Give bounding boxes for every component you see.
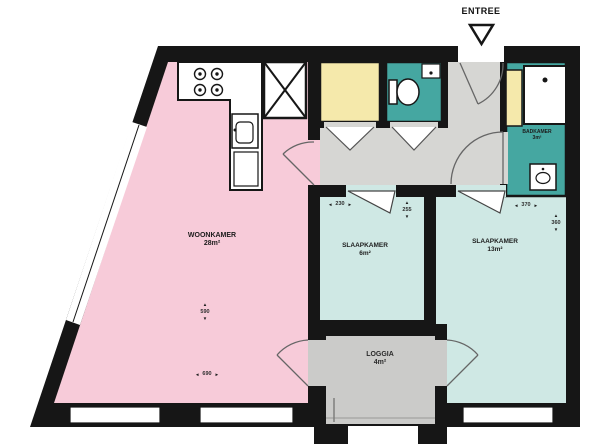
sink-icon <box>232 114 258 148</box>
arrow-up-icon: ▲ <box>405 201 409 206</box>
window-living-left <box>70 407 160 423</box>
room-name: SLAAPKAMER <box>342 242 388 250</box>
arrow-down-icon: ▼ <box>203 317 207 322</box>
toilet-basin-icon <box>422 64 440 78</box>
room-slaapkamer-large <box>436 197 566 403</box>
room-name: WOONKAMER <box>188 232 236 240</box>
washbasin-icon <box>530 164 556 190</box>
room-area: 13m² <box>472 246 518 254</box>
window-living-right <box>200 407 293 423</box>
window-bedroom-large <box>463 407 553 423</box>
room-area: 28m² <box>188 240 236 248</box>
loggia-opening <box>348 426 418 444</box>
badkamer-label: BADKAMER 3m² <box>522 129 551 141</box>
dim-value: 590 <box>200 310 209 316</box>
entrance-opening <box>458 46 504 62</box>
kitchen-appliance <box>234 152 258 186</box>
arrow-right-icon: ► <box>348 202 352 207</box>
entrance-arrow-icon <box>470 25 493 44</box>
room-area: 6m² <box>342 250 388 258</box>
arrow-left-icon: ◄ <box>195 372 199 377</box>
arrow-down-icon: ▼ <box>405 215 409 220</box>
dim-woonkamer-width: ◄ 690 ► <box>195 371 219 377</box>
bathroom-cupboard <box>506 70 522 126</box>
closet-room <box>320 62 380 122</box>
entree-label: ENTREE <box>462 6 501 16</box>
room-area: 4m² <box>366 359 394 367</box>
arrow-up-icon: ▲ <box>554 214 558 219</box>
room-loggia <box>326 336 435 424</box>
room-name: LOGGIA <box>366 351 394 359</box>
dim-slaapkamer-small-width: ◄ 230 ► <box>328 201 352 207</box>
arrow-right-icon: ► <box>215 372 219 377</box>
arrow-down-icon: ▼ <box>554 228 558 233</box>
arrow-right-icon: ► <box>534 203 538 208</box>
arrow-left-icon: ◄ <box>328 202 332 207</box>
dim-value: 360 <box>551 221 560 227</box>
dim-value: 255 <box>402 208 411 214</box>
room-name: SLAAPKAMER <box>472 238 518 246</box>
arrow-up-icon: ▲ <box>203 303 207 308</box>
floor-plan <box>0 0 600 448</box>
dim-slaapkamer-small-depth: ▲ 255 ▼ <box>402 201 411 220</box>
dim-value: 370 <box>521 202 530 208</box>
woonkamer-label: WOONKAMER 28m² <box>188 232 236 249</box>
toilet-icon <box>389 79 419 105</box>
slaapkamer-large-label: SLAAPKAMER 13m² <box>472 238 518 254</box>
dim-woonkamer-depth: ▲ 590 ▼ <box>200 303 209 322</box>
shaft-x-icon <box>264 62 306 118</box>
shower-icon <box>524 66 566 124</box>
dim-value: 230 <box>335 201 344 207</box>
dim-slaapkamer-large-depth: ▲ 360 ▼ <box>551 214 560 233</box>
arrow-left-icon: ◄ <box>514 203 518 208</box>
room-area: 3m² <box>522 135 551 141</box>
dim-slaapkamer-large-width: ◄ 370 ► <box>514 202 538 208</box>
floor-plan-page: ENTREE WOONKAMER 28m² SLAAPKAMER 6m² SLA… <box>0 0 600 448</box>
slaapkamer-small-label: SLAAPKAMER 6m² <box>342 242 388 258</box>
dim-value: 690 <box>202 371 211 377</box>
loggia-label: LOGGIA 4m² <box>366 351 394 368</box>
